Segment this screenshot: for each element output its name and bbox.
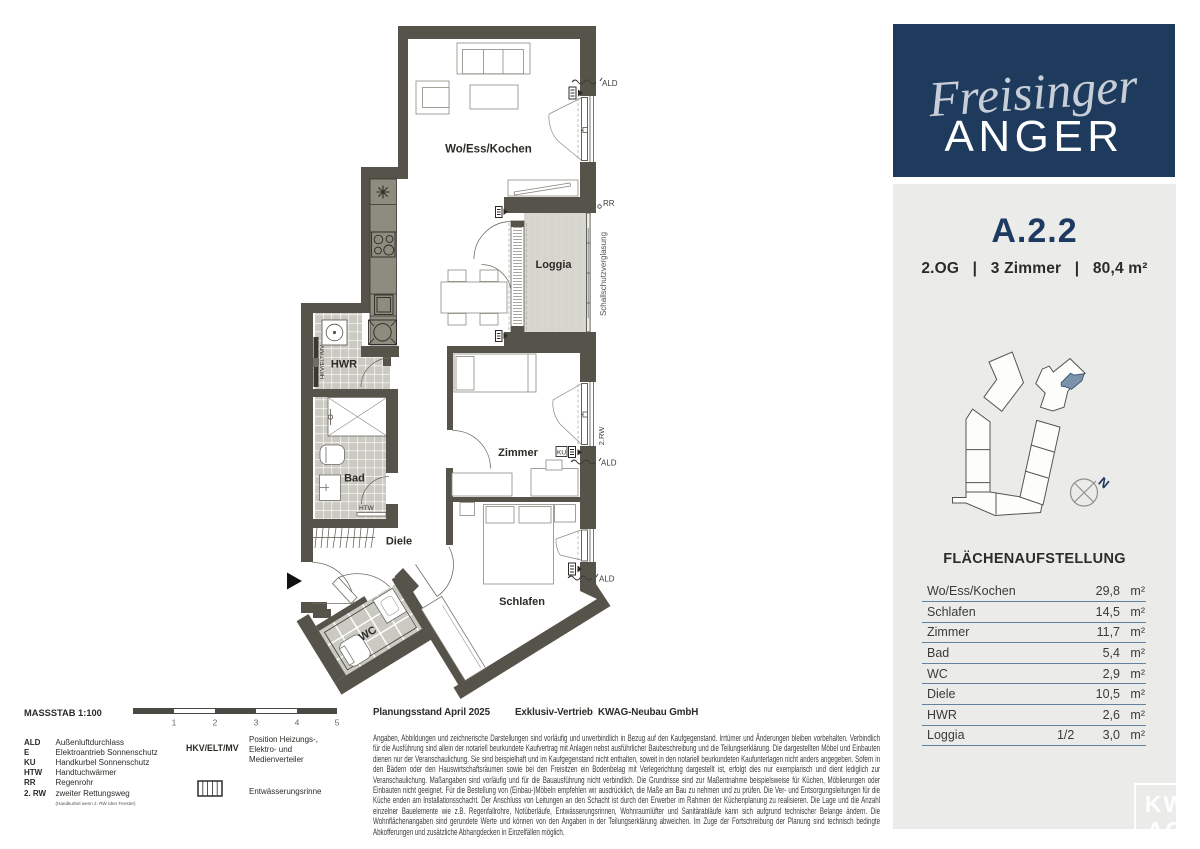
svg-text:Loggia: Loggia (535, 259, 572, 271)
svg-text:ANGER: ANGER (945, 112, 1124, 161)
svg-text:KU: KU (557, 450, 566, 457)
svg-text:2: 2 (213, 718, 218, 728)
svg-text:HTW: HTW (359, 505, 375, 512)
svg-text:3: 3 (254, 718, 259, 728)
svg-text:Schlafen: Schlafen (499, 596, 545, 608)
svg-text:Schallschutzverglasung: Schallschutzverglasung (599, 232, 608, 316)
svg-text:HWR: HWR (331, 359, 357, 371)
svg-text:4: 4 (295, 718, 300, 728)
svg-text:ALD: ALD (601, 459, 617, 468)
svg-text:Zimmer: Zimmer (498, 447, 538, 459)
svg-text:ALD: ALD (599, 575, 615, 584)
svg-text:ALD: ALD (602, 79, 618, 88)
svg-text:Diele: Diele (386, 536, 412, 548)
svg-text:HKV/ELT/MV: HKV/ELT/MV (320, 345, 326, 379)
svg-text:Bad: Bad (344, 473, 365, 485)
svg-text:5: 5 (335, 718, 340, 728)
svg-text:Wo/Ess/Kochen: Wo/Ess/Kochen (445, 144, 532, 156)
svg-text:N: N (1096, 474, 1113, 492)
svg-text:1: 1 (172, 718, 177, 728)
svg-text:RR: RR (603, 199, 615, 208)
svg-text:2.RW: 2.RW (597, 426, 606, 446)
